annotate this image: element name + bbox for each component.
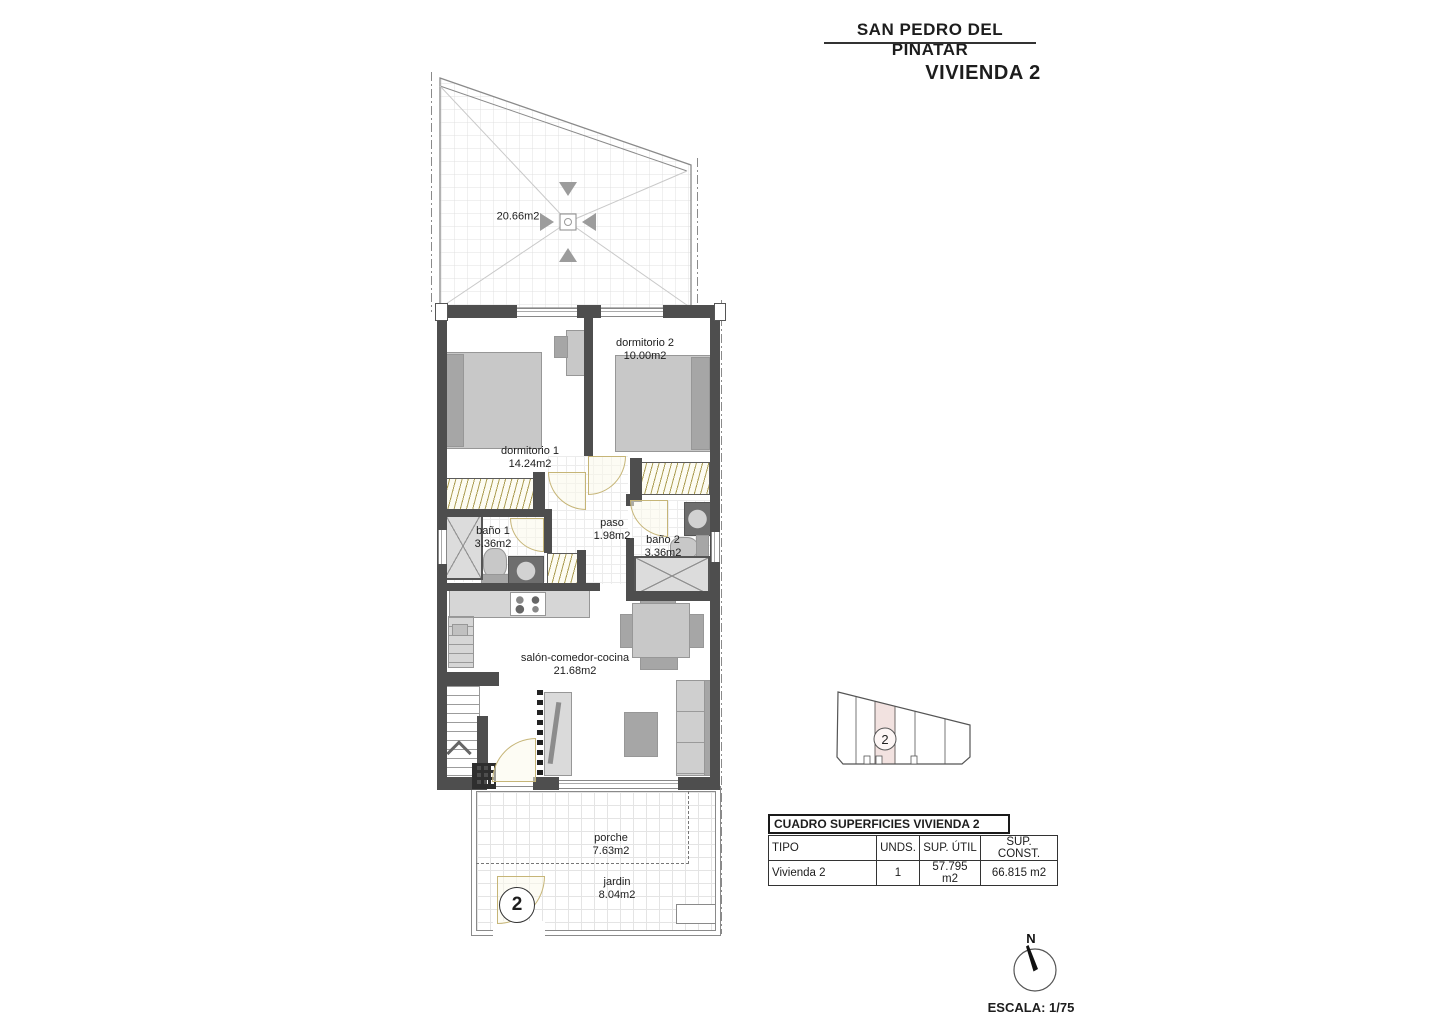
window-dormitorio2 bbox=[601, 308, 663, 317]
cell-tipo: Vivienda 2 bbox=[769, 861, 877, 886]
room-label-salon: salón-comedor-cocina 21.68m2 bbox=[521, 652, 629, 678]
room-label-dormitorio1: dormitorio 1 14.24m2 bbox=[501, 445, 559, 471]
shower-bano2 bbox=[634, 556, 710, 596]
window-cap bbox=[714, 303, 726, 321]
room-area: 8.04m2 bbox=[599, 889, 636, 902]
garden-step bbox=[676, 904, 716, 924]
surface-table-header-row: TIPO UNDS. SUP. ÚTIL SUP. CONST. bbox=[769, 836, 1058, 861]
title-underline bbox=[824, 42, 1036, 44]
col-header-sup-util: SUP. ÚTIL bbox=[920, 836, 981, 861]
bed-pillow-dormitorio2 bbox=[691, 357, 710, 450]
cell-unds: 1 bbox=[877, 861, 920, 886]
cell-sup-const: 66.815 m2 bbox=[981, 861, 1058, 886]
wall bbox=[626, 538, 634, 593]
window-bano1 bbox=[438, 530, 447, 564]
site-plan: 2 bbox=[832, 684, 980, 772]
room-area: 10.00m2 bbox=[616, 350, 674, 363]
room-area: 14.24m2 bbox=[501, 458, 559, 471]
tv-unit-dashes bbox=[537, 690, 543, 775]
floorplan-sheet: SAN PEDRO DEL PINATAR VIVIENDA 2 20. bbox=[0, 0, 1440, 1024]
window-cap bbox=[435, 303, 448, 321]
dresser-dormitorio1 bbox=[566, 330, 586, 376]
col-header-sup-const: SUP. CONST. bbox=[981, 836, 1058, 861]
wall bbox=[577, 550, 586, 586]
dresser-drawer bbox=[554, 336, 568, 358]
dining-table bbox=[632, 603, 690, 658]
wall bbox=[437, 509, 545, 517]
wall-bedroom-divider bbox=[584, 308, 593, 456]
compass-north-label: N bbox=[1026, 931, 1035, 946]
kitchen-sink bbox=[452, 624, 468, 636]
room-label-bano1: baño 1 3.36m2 bbox=[475, 525, 512, 551]
room-area: 1.98m2 bbox=[594, 530, 631, 543]
wardrobe-dormitorio1 bbox=[443, 478, 535, 511]
location-title: SAN PEDRO DEL PINATAR bbox=[824, 20, 1036, 60]
room-name: salón-comedor-cocina bbox=[521, 652, 629, 665]
wall bbox=[443, 305, 517, 318]
wall bbox=[533, 777, 559, 790]
room-name: porche bbox=[593, 832, 630, 845]
room-name: jardin bbox=[599, 876, 636, 889]
room-name: baño 1 bbox=[475, 525, 512, 538]
room-area: 20.66m2 bbox=[497, 211, 540, 224]
sink-bano2 bbox=[684, 502, 711, 536]
room-label-porche: porche 7.63m2 bbox=[593, 832, 630, 858]
surface-table-data-row: Vivienda 2 1 57.795 m2 66.815 m2 bbox=[769, 861, 1058, 886]
porche-boundary-dashed bbox=[476, 791, 689, 864]
surface-table: TIPO UNDS. SUP. ÚTIL SUP. CONST. Viviend… bbox=[768, 835, 1058, 886]
room-area: 3.36m2 bbox=[645, 547, 682, 560]
wall bbox=[544, 509, 552, 553]
room-area: 7.63m2 bbox=[593, 845, 630, 858]
window-dormitorio1 bbox=[517, 308, 577, 317]
room-area: 21.68m2 bbox=[521, 665, 629, 678]
room-area: 3.36m2 bbox=[475, 538, 512, 551]
window-salon bbox=[559, 780, 678, 789]
boundary-line-right bbox=[721, 300, 722, 934]
cell-sup-util: 57.795 m2 bbox=[920, 861, 981, 886]
site-plan-unit-number: 2 bbox=[881, 732, 888, 747]
roof-drain bbox=[560, 214, 576, 230]
room-label-dormitorio2: dormitorio 2 10.00m2 bbox=[616, 337, 674, 363]
roof-outline bbox=[440, 78, 691, 308]
col-header-tipo: TIPO bbox=[769, 836, 877, 861]
room-name: baño 2 bbox=[645, 534, 682, 547]
room-label-bano2: baño 2 3.36m2 bbox=[645, 534, 682, 560]
unit-number-marker: 2 bbox=[499, 887, 535, 923]
closet-paso bbox=[547, 553, 579, 585]
room-label-paso: paso 1.98m2 bbox=[594, 517, 631, 543]
north-compass: N bbox=[1002, 928, 1068, 994]
wall bbox=[437, 583, 600, 591]
wall bbox=[626, 591, 718, 601]
wall bbox=[678, 777, 720, 790]
room-label-solarium: 20.66m2 bbox=[497, 211, 540, 224]
room-name: paso bbox=[594, 517, 631, 530]
site-plan-outline bbox=[837, 692, 970, 764]
stove bbox=[510, 592, 546, 616]
unit-title: VIVIENDA 2 bbox=[883, 62, 1083, 85]
site-plan-dividers bbox=[856, 697, 945, 765]
door-entry bbox=[492, 738, 536, 782]
roof-terrace-drawing bbox=[428, 70, 700, 312]
wardrobe-dormitorio2 bbox=[640, 462, 710, 495]
bed-pillow-dormitorio1 bbox=[446, 354, 464, 447]
window-bano2 bbox=[711, 532, 720, 562]
sink-bano1 bbox=[508, 556, 544, 586]
surface-table-title: CUADRO SUPERFICIES VIVIENDA 2 bbox=[768, 814, 1010, 834]
wall bbox=[437, 672, 499, 686]
room-name: dormitorio 2 bbox=[616, 337, 674, 350]
coffee-table bbox=[624, 712, 658, 757]
room-name: dormitorio 1 bbox=[501, 445, 559, 458]
room-label-jardin: jardin 8.04m2 bbox=[599, 876, 636, 902]
col-header-unds: UNDS. bbox=[877, 836, 920, 861]
dining-chair-right bbox=[689, 614, 704, 648]
scale-label: ESCALA: 1/75 bbox=[966, 1000, 1096, 1015]
